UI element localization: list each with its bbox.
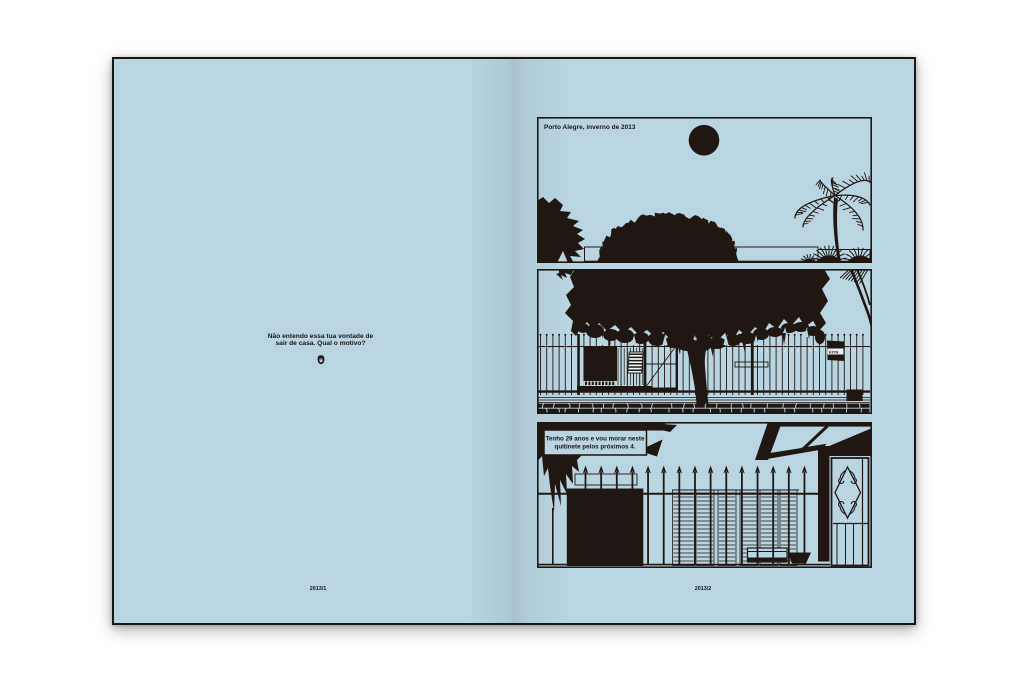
svg-text:KITN: KITN — [829, 349, 838, 354]
svg-text:Tenho 29 anos e vou morar nest: Tenho 29 anos e vou morar neste — [545, 435, 644, 442]
svg-text:Porto Alegre, inverno de 2013: Porto Alegre, inverno de 2013 — [544, 123, 636, 130]
svg-text:quitinete pelos próximos 4.: quitinete pelos próximos 4. — [554, 443, 635, 450]
